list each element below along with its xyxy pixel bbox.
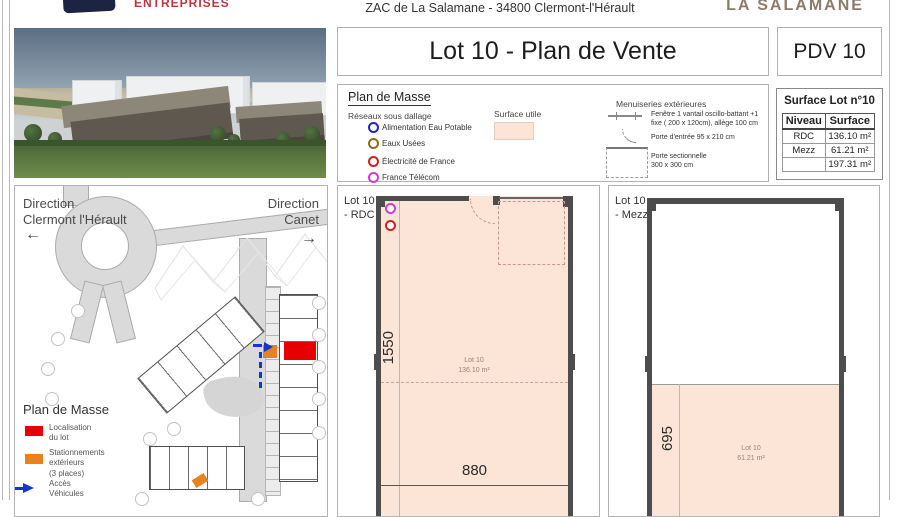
plan-de-vente-sheet: { "header": { "logo_text": "ENTREPRISES"…: [0, 0, 900, 500]
rdc-plan-label: Lot 10 - RDC: [344, 194, 375, 223]
mezz-window-left: [645, 356, 652, 372]
page-edge-left-inner: [9, 0, 10, 500]
mezz-wall-top: [647, 198, 844, 204]
lot-location-marker: [284, 342, 316, 360]
rdc-sectional-door-zone: [498, 201, 565, 265]
menuiserie-label: Porte d'entrée 95 x 210 cm: [651, 133, 735, 142]
rdc-top-window-band: [499, 197, 563, 199]
surface-table: Surface Lot n°10 Niveau Surface RDC 136.…: [776, 88, 883, 180]
aerial-render-image: [14, 28, 326, 178]
company-logo-text: ENTREPRISES: [134, 0, 230, 10]
arrow-left-icon: ←: [25, 226, 41, 244]
map-legend-label: Accès Véhicules: [49, 479, 84, 500]
vehicle-access-legend-icon: [23, 483, 34, 493]
cell-surface: 61.21 m²: [825, 144, 874, 158]
cell-niveau: [783, 158, 826, 172]
mezz-plan-panel: Lot 10 - Mezz 695 Lot 10 61.21 m²: [608, 185, 880, 517]
company-logo-icon: [62, 0, 115, 13]
electricity-marker-icon: [385, 220, 396, 231]
tree-icon: [251, 492, 265, 506]
network-label: Eaux Usées: [382, 139, 425, 148]
tree-icon: [71, 304, 85, 318]
mezz-window-right: [839, 356, 846, 372]
cell-niveau: Mezz: [783, 144, 826, 158]
mezz-slab-edge: [652, 384, 839, 385]
network-label: Électricité de France: [382, 157, 455, 166]
tree-icon: [143, 432, 157, 446]
rdc-lot-area: 136.10 m²: [414, 366, 534, 377]
sectional-door-icon: [606, 147, 648, 178]
rdc-height-dimension: 1550: [380, 331, 397, 364]
sheet-title: Lot 10 - Plan de Vente: [337, 27, 769, 76]
rdc-mezz-edge-dashed: [381, 382, 568, 383]
cell-niveau: RDC: [783, 129, 826, 144]
vehicle-access-path: [253, 344, 262, 347]
rdc-lot-name: Lot 10: [414, 356, 534, 367]
water-supply-icon: [368, 122, 379, 133]
building-east: [279, 294, 318, 482]
network-label: France Télécom: [382, 173, 440, 182]
map-legend-label: Localisation du lot: [49, 423, 91, 444]
menuiserie-label: Fenêtre 1 vantail oscillo-battant +1 fix…: [651, 110, 758, 129]
map-legend-title: Plan de Masse: [23, 402, 109, 417]
rdc-corner: [376, 196, 385, 207]
networks-heading: Réseaux sous dallage: [348, 111, 432, 121]
render-grass: [14, 146, 326, 178]
tree-icon: [312, 328, 326, 342]
mezz-lot-name: Lot 10: [691, 444, 811, 455]
telecom-marker-icon: [385, 203, 396, 214]
cell-surface: 197.31 m²: [825, 158, 874, 172]
table-row: 197.31 m²: [783, 158, 875, 172]
menuiseries-heading: Menuiseries extérieures: [616, 99, 706, 109]
entry-door-icon: [622, 129, 636, 143]
mezz-lot-area: 61.21 m²: [691, 454, 811, 465]
window-icon: [608, 115, 642, 117]
direction-right-label: Direction Canet: [268, 196, 319, 229]
electricity-icon: [368, 156, 379, 167]
cell-surface: 136.10 m²: [825, 129, 874, 144]
mezz-plan-label: Lot 10 - Mezz: [615, 194, 648, 223]
surface-utile-swatch: [494, 122, 534, 140]
tree-icon: [41, 362, 55, 376]
site-map-panel: Direction Clermont l'Hérault ← Direction…: [14, 185, 328, 517]
parking-swatch: [25, 454, 43, 464]
roundabout-island: [81, 222, 129, 270]
tree-icon: [312, 392, 326, 406]
surface-utile-label: Surface utile: [494, 109, 541, 119]
col-surface: Surface: [825, 114, 874, 130]
mezz-height-dimension: 695: [659, 426, 676, 451]
rdc-width-dimension: 880: [376, 462, 573, 479]
page-edge-right: [889, 0, 890, 500]
lot-location-swatch: [25, 426, 43, 436]
rdc-wall-top: [376, 196, 469, 201]
tree-icon: [51, 332, 65, 346]
rdc-dim-line-horizontal: [381, 485, 568, 486]
direction-left-label: Direction Clermont l'Hérault: [23, 196, 127, 229]
surface-table-title: Surface Lot n°10: [777, 95, 882, 107]
rdc-plan-panel: Lot 10 - RDC 1550 Lot 10 136.10 m² 880: [337, 185, 600, 517]
tree-icon: [312, 426, 326, 440]
project-address: ZAC de La Salamane - 34800 Clermont-l'Hé…: [330, 1, 670, 15]
tree-icon: [312, 360, 326, 374]
map-legend-label: Stationnements extérieurs (3 places): [49, 448, 105, 479]
sheet-reference: PDV 10: [777, 27, 882, 76]
telecom-icon: [368, 172, 379, 183]
menuiserie-label: Porte sectionnelle 300 x 300 cm: [651, 152, 707, 171]
tree-icon: [167, 422, 181, 436]
mezz-dim-line-vertical: [679, 384, 680, 516]
table-row: Mezz 61.21 m²: [783, 144, 875, 158]
network-label: Alimentation Eau Potable: [382, 123, 472, 132]
page-edge-left-outer: [2, 0, 3, 500]
col-niveau: Niveau: [783, 114, 826, 130]
arrow-right-icon: →: [301, 230, 317, 248]
tree-icon: [135, 492, 149, 506]
sewage-icon: [368, 138, 379, 149]
table-row: RDC 136.10 m²: [783, 129, 875, 144]
brand-logo-text: LA SALAMANE: [725, 0, 865, 15]
legend-title: Plan de Masse: [348, 90, 431, 106]
surface-table-grid: Niveau Surface RDC 136.10 m² Mezz 61.21 …: [782, 113, 875, 172]
legend-box: Plan de Masse Réseaux sous dallage Alime…: [337, 84, 769, 182]
vehicle-access-arrow-icon: [264, 342, 273, 352]
tree-icon: [312, 296, 326, 310]
vehicle-access-path: [259, 352, 262, 388]
rdc-window-right: [568, 354, 575, 370]
